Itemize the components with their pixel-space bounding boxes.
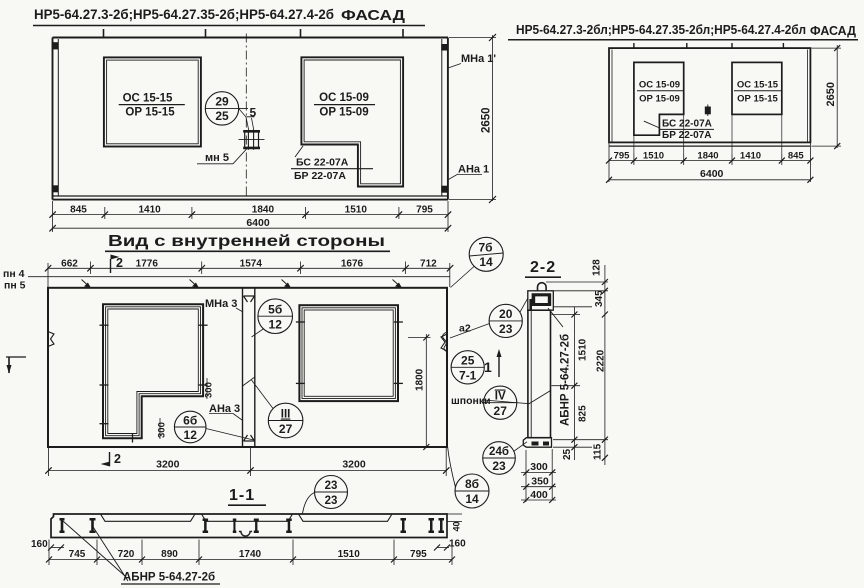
svg-text:745: 745 [69,549,86,560]
svg-text:845: 845 [788,151,805,162]
svg-text:890: 890 [161,549,178,560]
svg-text:7-1: 7-1 [459,369,477,383]
svg-text:300: 300 [204,382,215,398]
svg-text:3200: 3200 [156,459,180,471]
svg-text:БР 22-07А: БР 22-07А [662,130,711,141]
svg-text:пн 4: пн 4 [3,268,25,280]
svg-text:12: 12 [269,318,283,332]
svg-text:2: 2 [116,256,123,270]
svg-text:24б: 24б [489,446,509,458]
svg-text:ОР 15-15: ОР 15-15 [737,94,778,105]
svg-text:1410: 1410 [138,205,161,216]
svg-text:1574: 1574 [240,259,263,270]
svg-text:III: III [281,409,291,421]
svg-text:14: 14 [465,492,479,506]
svg-text:6400: 6400 [246,217,270,229]
svg-text:ОС 15-09: ОС 15-09 [319,92,369,104]
svg-text:128: 128 [592,259,603,276]
svg-text:МНа 3: МНа 3 [205,298,237,310]
svg-text:20: 20 [499,307,513,321]
svg-text:ОР 15-09: ОР 15-09 [319,107,368,119]
svg-text:1410: 1410 [740,151,761,162]
svg-text:АБНР 5-64.27-2б: АБНР 5-64.27-2б [560,334,572,426]
svg-text:ОС 15-09: ОС 15-09 [639,80,680,91]
svg-text:662: 662 [61,259,78,270]
svg-text:АНа 1: АНа 1 [458,164,489,176]
svg-text:2-2: 2-2 [530,259,556,276]
svg-text:БС 22-07А: БС 22-07А [662,119,712,130]
svg-text:1776: 1776 [136,259,159,270]
svg-text:25: 25 [461,354,475,368]
svg-text:ОР 15-09: ОР 15-09 [639,94,680,105]
svg-text:1: 1 [484,359,492,375]
svg-text:5б: 5б [268,303,282,317]
svg-text:1510: 1510 [338,549,361,560]
svg-text:350: 350 [531,476,549,488]
svg-text:АБНР 5-64.27-2б: АБНР 5-64.27-2б [123,572,215,584]
svg-text:25: 25 [562,448,573,460]
svg-text:ОС 15-15: ОС 15-15 [737,80,779,91]
svg-text:1800: 1800 [415,368,426,391]
svg-text:795: 795 [416,205,433,216]
svg-text:1840: 1840 [697,151,718,162]
svg-text:1676: 1676 [341,259,364,270]
svg-text:12: 12 [184,428,198,442]
svg-text:825: 825 [578,405,589,422]
svg-text:2: 2 [114,452,121,466]
svg-text:ФАСАД: ФАСАД [810,23,857,38]
svg-text:1740: 1740 [239,549,262,560]
svg-text:115: 115 [593,443,604,460]
svg-text:2650: 2650 [825,82,837,106]
svg-text:ОС 15-15: ОС 15-15 [123,93,173,105]
svg-text:160: 160 [31,539,48,550]
svg-text:НР5-64.27.3-2бл;НР5-64.27.35-2: НР5-64.27.3-2бл;НР5-64.27.35-2бл;НР5-64.… [516,23,806,37]
svg-text:2650: 2650 [481,107,493,133]
svg-text:МНа 1': МНа 1' [461,53,496,65]
svg-text:27: 27 [279,422,293,436]
svg-text:6б: 6б [183,414,197,428]
svg-text:29: 29 [215,95,229,109]
svg-text:1510: 1510 [643,151,664,162]
svg-text:23: 23 [492,459,506,473]
svg-text:5: 5 [250,106,257,120]
svg-text:160: 160 [449,539,466,550]
svg-text:1840: 1840 [252,205,275,216]
svg-text:БР 22-07А: БР 22-07А [294,170,346,182]
svg-text:БС 22-07А: БС 22-07А [296,157,349,169]
svg-text:1510: 1510 [345,205,368,216]
svg-text:845: 845 [70,205,87,216]
svg-text:23: 23 [325,480,338,492]
svg-text:40: 40 [452,521,462,531]
svg-text:300: 300 [530,461,548,473]
svg-text:25: 25 [215,109,229,123]
svg-text:мн 5: мн 5 [205,152,229,164]
svg-text:400: 400 [530,489,548,501]
svg-text:23: 23 [325,495,338,507]
svg-text:ОР 15-15: ОР 15-15 [125,107,175,119]
svg-text:712: 712 [420,259,437,270]
svg-text:23: 23 [499,322,513,336]
svg-text:1510: 1510 [578,338,589,361]
svg-text:3200: 3200 [342,459,366,471]
svg-text:ФАСАД: ФАСАД [341,7,405,24]
svg-text:795: 795 [410,549,427,560]
svg-text:пн 5: пн 5 [4,280,26,292]
svg-text:2220: 2220 [596,349,607,372]
svg-text:1-1: 1-1 [229,487,255,504]
svg-text:345: 345 [594,290,605,307]
svg-text:300: 300 [157,422,168,438]
svg-text:7б: 7б [478,241,492,255]
svg-text:14: 14 [479,255,493,269]
svg-text:27: 27 [494,404,508,418]
svg-text:8б: 8б [465,477,479,491]
svg-text:НР5-64.27.3-2б;НР5-64.27.35-2б: НР5-64.27.3-2б;НР5-64.27.35-2б;НР5-64.27… [34,7,334,22]
svg-text:6400: 6400 [700,168,724,180]
svg-text:Вид с внутренней стороны: Вид с внутренней стороны [108,233,385,250]
svg-text:720: 720 [118,549,135,560]
svg-text:795: 795 [614,151,631,162]
